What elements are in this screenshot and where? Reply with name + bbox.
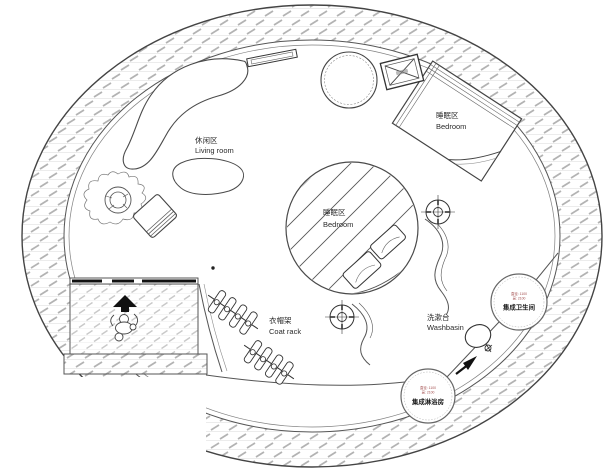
plan-cutout xyxy=(0,377,206,473)
coffee-table xyxy=(173,158,244,194)
coat-rack-label-en: Coat rack xyxy=(269,327,301,336)
bathroom-spec-2: 高: 2100 xyxy=(513,296,526,301)
wall-shelf xyxy=(247,49,298,66)
shower-pod-label: 集成淋浴房 xyxy=(411,397,445,406)
bedroom-top-label-en: Bedroom xyxy=(436,122,466,131)
corridor-arrow-icon xyxy=(456,356,477,374)
round-table xyxy=(321,52,377,108)
washbasin-label-zh: 洗漱台 xyxy=(427,312,450,322)
bathroom-spec-1: 直径: 1100 xyxy=(511,291,527,296)
ceiling-fixture-icon xyxy=(421,195,455,229)
bathroom-pod-label: 集成卫生间 xyxy=(502,303,535,312)
entry-walkway xyxy=(64,284,227,374)
small-dot-marker xyxy=(211,266,214,269)
coat-rack-label-zh: 衣帽架 xyxy=(269,315,292,325)
coat-rack-symbol xyxy=(201,285,265,339)
bedroom-center-label-en: Bedroom xyxy=(323,220,353,229)
shower-spec-2: 高: 2100 xyxy=(422,390,435,395)
bathroom-pod: 直径: 1100 高: 2100 集成卫生间 xyxy=(491,274,547,330)
washbasin-label-en: Washbasin xyxy=(427,323,464,332)
floor-plan-canvas: 直径: 1100 高: 2100 集成卫生间 直径: 1100 高: 2100 … xyxy=(0,0,611,473)
bedroom-top-label-zh: 睡眠区 xyxy=(436,111,459,120)
shower-pod: 直径: 1100 高: 2100 集成淋浴房 xyxy=(401,369,455,423)
floor-plan-svg: 直径: 1100 高: 2100 集成卫生间 直径: 1100 高: 2100 … xyxy=(0,0,611,473)
shower-spec-1: 直径: 1100 xyxy=(420,385,436,390)
living-room-label-en: Living room xyxy=(195,146,234,155)
coat-rack-symbol xyxy=(237,335,301,389)
washbasin-label: 洗漱台 Washbasin xyxy=(427,312,464,332)
living-room-label: 休闲区 Living room xyxy=(195,135,234,155)
washbasin-symbol xyxy=(462,321,495,352)
door-threshold xyxy=(70,278,198,284)
coat-rack-label: 衣帽架 Coat rack xyxy=(269,315,301,336)
living-room-label-zh: 休闲区 xyxy=(195,135,218,145)
bedroom-center-label-zh: 睡眠区 xyxy=(323,208,346,217)
